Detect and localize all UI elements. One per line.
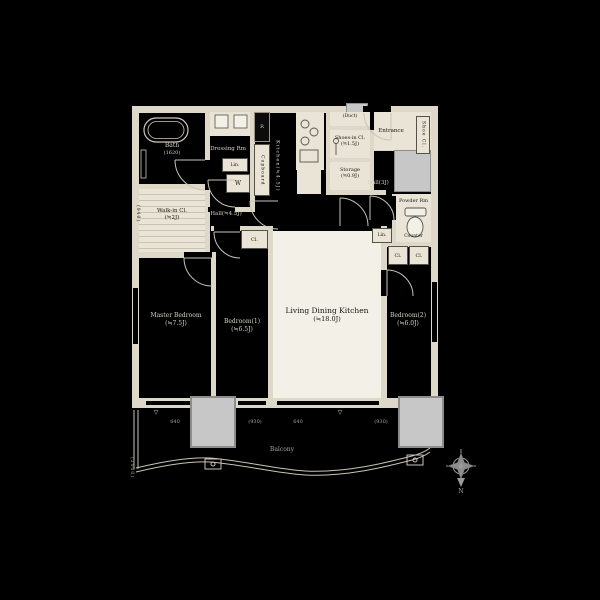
closet-bedroom2-b: Cl. <box>409 246 429 265</box>
wall-left <box>132 106 139 408</box>
floor-plan: R Cupboard Lin. W Shoe Cl. Lin. Cl. Cl. … <box>0 0 600 600</box>
dim-left-wall: (940) <box>131 200 140 228</box>
bedroom1-door-opening <box>214 226 240 231</box>
closet-bedroom1: Cl. <box>241 230 268 249</box>
bedroom2-label: Bedroom(2) (≒6.0J) <box>384 312 432 327</box>
shoes-in-closet-label: Shoes-in Cl. (≒1.5J) <box>330 135 370 148</box>
dim-balcony-side-text: (2000) <box>129 457 134 478</box>
inner-hall-label: Hall(≒4.5J) <box>198 211 254 218</box>
entrance-label: Entrance <box>368 128 414 135</box>
storage-size: (≒0.9J) <box>330 173 370 179</box>
ldk-size: (≒18.0J) <box>275 315 379 323</box>
bath-label: Bath (1620) <box>139 142 205 156</box>
window-bedroom1 <box>238 400 266 406</box>
master-bedroom-label: Master Bedroom (≒7.5J) <box>139 312 213 327</box>
master-door-opening <box>184 252 212 258</box>
entry-hall-text: Hall(3J) <box>367 180 389 186</box>
dim-balcony-side: (2000) <box>124 450 134 484</box>
duct-label: (Duct) <box>330 114 370 120</box>
compass-icon <box>446 449 476 487</box>
dim-640-b-text: 640 <box>293 419 303 425</box>
pillar-right <box>398 396 444 448</box>
ldk-name: Living Dining Kitchen <box>285 306 368 315</box>
kitchen-text: Kitchen(≒4.5J) <box>274 140 280 192</box>
counter-text: Counter <box>404 234 423 239</box>
dressing-room-label: Dressing Rm <box>206 146 250 153</box>
inner-hall-text: Hall(≒4.5J) <box>210 211 241 217</box>
dim-930-a: (930) <box>240 419 270 425</box>
kitchen-lower-unit <box>297 168 321 194</box>
window-ldk <box>277 400 379 406</box>
level-marker-1: ▽ <box>150 409 162 417</box>
walk-in-name: Walk-in Cl. <box>157 208 187 214</box>
master-size: (≒7.5J) <box>139 320 213 328</box>
cupboard-label: Cupboard <box>260 155 265 186</box>
dim-640-b: 640 <box>286 419 310 425</box>
level-marker-2: ▽ <box>334 409 346 417</box>
vanity-counter <box>210 112 250 136</box>
shoe-closet-box: Shoe Cl. <box>416 116 430 154</box>
shoes-in-size: (≒1.5J) <box>330 141 370 147</box>
storage-label: Storage (≒0.9J) <box>330 167 370 180</box>
balcony-label: Balcony <box>252 446 312 454</box>
wall-right <box>431 106 438 408</box>
washer-label: W <box>235 180 241 187</box>
dim-640-a: 640 <box>162 419 188 425</box>
bedroom1-size: (≒6.5J) <box>214 326 270 334</box>
kitchen-label: Kitchen(≒4.5J) <box>274 138 280 194</box>
bath-name: Bath <box>165 142 179 149</box>
compass-north-text: N <box>458 488 463 495</box>
dressing-name: Dressing Rm <box>210 146 246 152</box>
balcony-text: Balcony <box>270 446 294 453</box>
kitchen-counter <box>296 112 324 170</box>
linen2-label: Lin. <box>378 233 387 238</box>
dim-640-a-text: 640 <box>170 419 180 425</box>
closet2-label: Cl. <box>394 253 401 259</box>
closet-bedroom2-a: Cl. <box>388 246 408 265</box>
washer-box: W <box>226 174 250 193</box>
bedroom2-name: Bedroom(2) <box>390 312 426 319</box>
duct-text: (Duct) <box>343 114 357 119</box>
refrigerator-box: R <box>254 112 270 142</box>
bedroom1-name: Bedroom(1) <box>224 318 260 325</box>
linen-box-dressing: Lin. <box>222 158 248 172</box>
cupboard-box: Cupboard <box>254 144 270 196</box>
entrance-text: Entrance <box>378 128 404 134</box>
ldk-label: Living Dining Kitchen (≒18.0J) <box>275 306 379 324</box>
compass-north-label: N <box>455 488 467 496</box>
counter-label: Counter <box>396 234 431 240</box>
linen1-label: Lin. <box>231 163 240 168</box>
bedroom2-door-opening <box>381 270 387 296</box>
bedroom1-label: Bedroom(1) (≒6.5J) <box>214 318 270 333</box>
master-name: Master Bedroom <box>150 312 201 319</box>
level-marker-1-glyph: ▽ <box>154 409 159 416</box>
closet3-label: Cl. <box>415 253 422 259</box>
powder-room-label: Powder Rm <box>396 198 431 204</box>
entry-hall-label: Hall(3J) <box>360 180 396 187</box>
window-master <box>146 400 190 406</box>
powder-name: Powder Rm <box>399 198 428 204</box>
dim-930-b-text: (930) <box>374 419 387 425</box>
dim-930-b: (930) <box>366 419 396 425</box>
refrigerator-label: R <box>260 124 264 130</box>
pillar-left <box>190 396 236 448</box>
bedroom2-size: (≒6.0J) <box>384 320 432 328</box>
wall-storage-hall <box>326 190 386 195</box>
dim-left-wall-text: (940) <box>135 205 140 222</box>
bath-door-opening <box>205 160 210 190</box>
window-bedroom2-side <box>431 282 438 342</box>
shoe-closet-label: Shoe Cl. <box>421 121 426 148</box>
dim-930-a-text: (930) <box>248 419 261 425</box>
closet1-label: Cl. <box>251 237 258 243</box>
window-master-side <box>132 288 139 344</box>
walk-in-size: (≒2J) <box>139 215 205 222</box>
level-marker-2-glyph: ▽ <box>338 409 343 416</box>
pipe-shaft <box>394 150 431 192</box>
bath-size: (1620) <box>139 150 205 156</box>
linen-box-powder: Lin. <box>372 228 392 243</box>
walk-in-closet-label: Walk-in Cl. (≒2J) <box>139 208 205 222</box>
